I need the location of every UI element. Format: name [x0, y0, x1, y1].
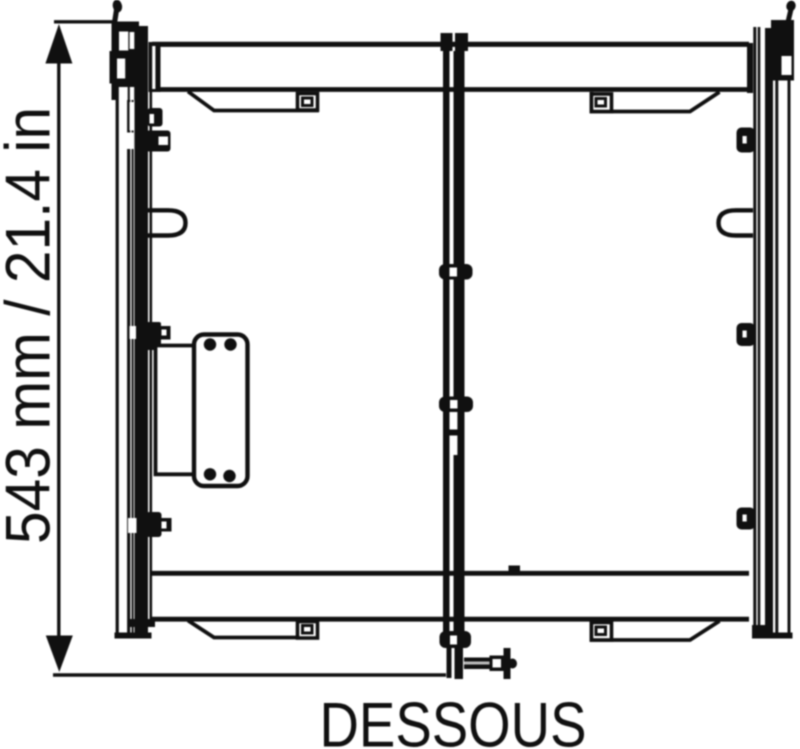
svg-text:543 mm / 21.4 in: 543 mm / 21.4 in: [0, 107, 64, 544]
svg-text:DESSOUS: DESSOUS: [320, 691, 587, 749]
